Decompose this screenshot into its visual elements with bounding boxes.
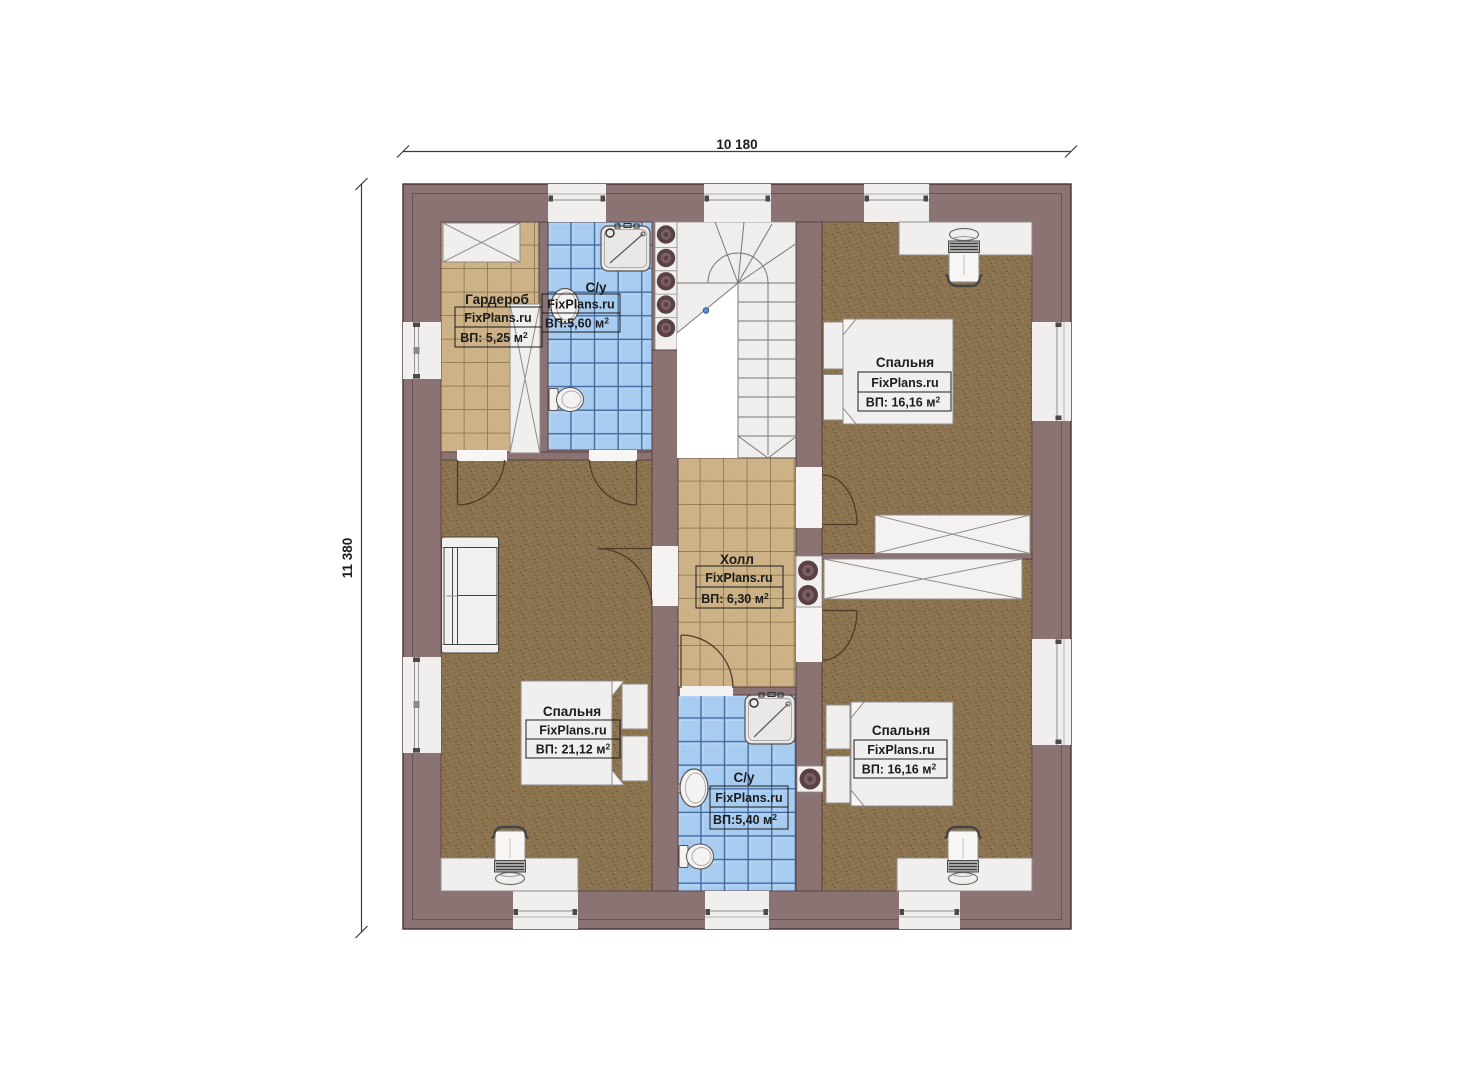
svg-text:FixPlans.ru: FixPlans.ru: [715, 791, 782, 805]
svg-text:Гардероб: Гардероб: [465, 292, 529, 307]
svg-text:Спальня: Спальня: [876, 355, 934, 370]
svg-text:С/у: С/у: [733, 770, 755, 785]
svg-text:10 180: 10 180: [716, 137, 757, 152]
svg-text:FixPlans.ru: FixPlans.ru: [539, 724, 606, 738]
svg-text:Спальня: Спальня: [872, 723, 930, 738]
svg-text:FixPlans.ru: FixPlans.ru: [705, 571, 772, 585]
svg-text:FixPlans.ru: FixPlans.ru: [867, 743, 934, 757]
svg-text:С/у: С/у: [585, 280, 607, 295]
svg-text:ВП: 21,12 м2: ВП: 21,12 м2: [536, 742, 611, 757]
svg-text:Спальня: Спальня: [543, 704, 601, 719]
svg-text:ВП:5,40 м2: ВП:5,40 м2: [713, 812, 777, 827]
svg-text:ВП:5,60 м2: ВП:5,60 м2: [545, 316, 609, 331]
svg-text:11 380: 11 380: [340, 538, 355, 579]
svg-text:FixPlans.ru: FixPlans.ru: [547, 298, 614, 312]
svg-text:FixPlans.ru: FixPlans.ru: [464, 311, 531, 325]
svg-text:FixPlans.ru: FixPlans.ru: [871, 376, 938, 390]
svg-text:ВП: 5,25 м2: ВП: 5,25 м2: [460, 330, 528, 345]
svg-text:ВП: 6,30 м2: ВП: 6,30 м2: [701, 591, 769, 606]
svg-text:ВП: 16,16 м2: ВП: 16,16 м2: [862, 762, 937, 777]
svg-text:Холл: Холл: [720, 552, 754, 567]
svg-text:ВП: 16,16 м2: ВП: 16,16 м2: [866, 395, 941, 410]
